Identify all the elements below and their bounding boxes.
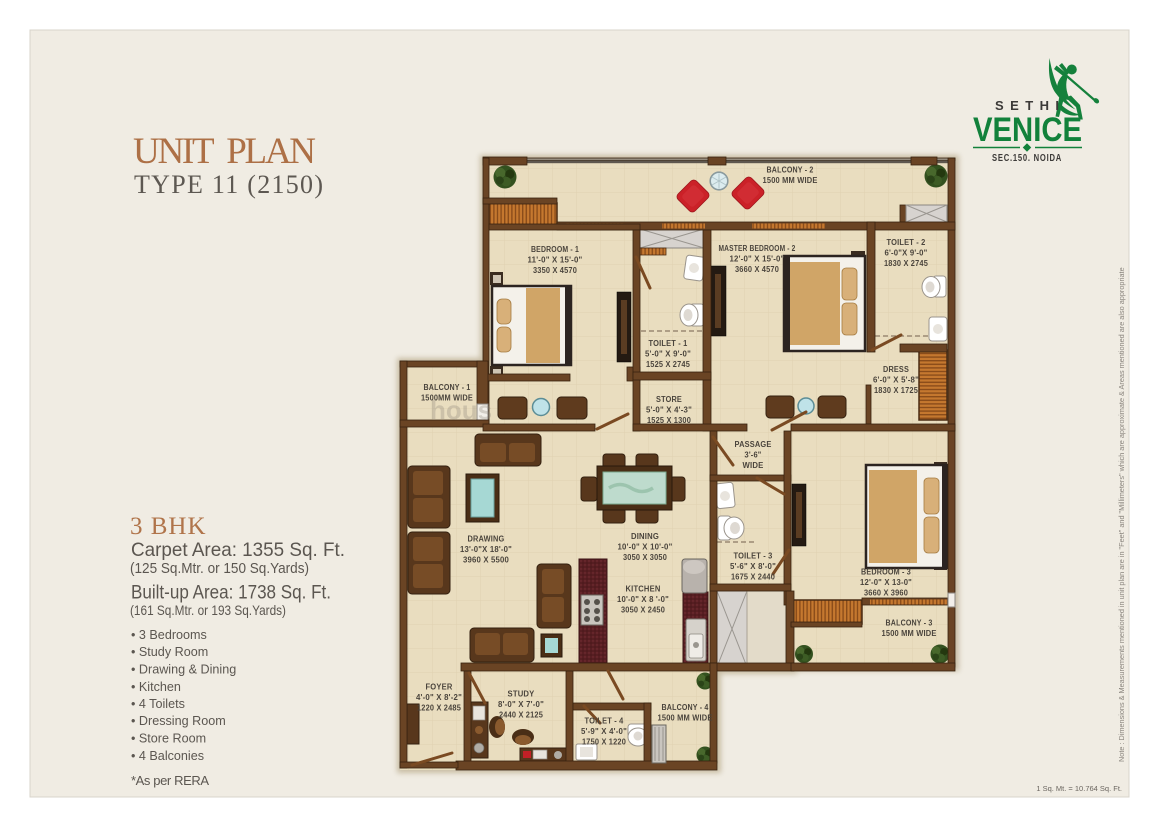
svg-text:3050 X 2450: 3050 X 2450: [621, 605, 665, 614]
svg-text:1675 X 2440: 1675 X 2440: [731, 572, 775, 581]
svg-text:PASSAGE: PASSAGE: [735, 440, 772, 449]
svg-text:Note : Dimensions & Measuremen: Note : Dimensions & Measurements mention…: [1117, 267, 1126, 762]
svg-text:8'-0" X 7'-0": 8'-0" X 7'-0": [498, 700, 544, 709]
svg-text:VENICE: VENICE: [973, 111, 1082, 149]
svg-text:1525 X 2745: 1525 X 2745: [646, 360, 690, 369]
svg-text:DRAWING: DRAWING: [468, 535, 505, 544]
svg-text:1830 X 1725: 1830 X 1725: [874, 386, 918, 395]
svg-text:FOYER: FOYER: [426, 683, 453, 692]
svg-text:• 4 Toilets: • 4 Toilets: [131, 697, 185, 711]
svg-text:BEDROOM - 3: BEDROOM - 3: [861, 568, 911, 577]
svg-text:1500 MM WIDE: 1500 MM WIDE: [658, 713, 713, 722]
svg-text:TYPE 11 (2150): TYPE 11 (2150): [134, 170, 323, 199]
svg-text:DINING: DINING: [631, 532, 659, 541]
svg-text:BALCONY - 2: BALCONY - 2: [767, 166, 814, 175]
svg-text:1750 X 1220: 1750 X 1220: [582, 737, 626, 746]
svg-text:TOILET - 3: TOILET - 3: [734, 552, 773, 561]
svg-text:10'-0" X 8 '-0": 10'-0" X 8 '-0": [617, 595, 669, 604]
svg-text:1500 MM WIDE: 1500 MM WIDE: [882, 629, 937, 638]
svg-text:TOILET - 4: TOILET - 4: [585, 717, 624, 726]
svg-text:UNIT PLAN: UNIT PLAN: [133, 131, 316, 172]
svg-text:1 Sq. Mt. = 10.764 Sq. Ft.: 1 Sq. Mt. = 10.764 Sq. Ft.: [1036, 784, 1122, 793]
svg-text:3050 X 3050: 3050 X 3050: [623, 553, 667, 562]
svg-text:3960 X 5500: 3960 X 5500: [463, 555, 509, 564]
svg-text:Carpet Area: 1355 Sq. Ft.: Carpet Area: 1355 Sq. Ft.: [131, 539, 345, 561]
svg-text:5'-9" X 4'-0": 5'-9" X 4'-0": [581, 727, 627, 736]
svg-text:KITCHEN: KITCHEN: [626, 585, 661, 594]
svg-text:5'-6" X 8'-0": 5'-6" X 8'-0": [730, 562, 776, 571]
svg-text:(161 Sq.Mtr. or 193 Sq.Yards): (161 Sq.Mtr. or 193 Sq.Yards): [130, 602, 286, 618]
svg-text:5'-0" X 4'-3": 5'-0" X 4'-3": [646, 405, 692, 414]
svg-text:12'-0" X 15'-0": 12'-0" X 15'-0": [730, 254, 785, 263]
svg-text:2440 X 2125: 2440 X 2125: [499, 710, 543, 719]
svg-text:3 BHK: 3 BHK: [130, 513, 207, 540]
svg-text:1220 X 2485: 1220 X 2485: [417, 703, 461, 712]
svg-text:• Study Room: • Study Room: [131, 645, 208, 659]
svg-text:6'-0"X 9'-0": 6'-0"X 9'-0": [885, 248, 928, 257]
svg-text:1500 MM WIDE: 1500 MM WIDE: [763, 176, 818, 185]
svg-text:WIDE: WIDE: [743, 461, 764, 470]
svg-text:Built-up Area: 1738 Sq. Ft.: Built-up Area: 1738 Sq. Ft.: [131, 582, 331, 604]
svg-text:BALCONY - 1: BALCONY - 1: [424, 383, 471, 392]
svg-text:TOILET - 1: TOILET - 1: [649, 339, 688, 348]
svg-text:• Kitchen: • Kitchen: [131, 680, 181, 694]
svg-text:1830 X 2745: 1830 X 2745: [884, 259, 928, 268]
svg-text:4'-0" X 8'-2": 4'-0" X 8'-2": [416, 693, 462, 702]
svg-text:13'-0"X 18'-0": 13'-0"X 18'-0": [460, 545, 512, 554]
svg-text:3'-6": 3'-6": [745, 450, 762, 459]
svg-text:BALCONY - 3: BALCONY - 3: [886, 619, 933, 628]
svg-text:5'-0" X 9'-0": 5'-0" X 9'-0": [645, 349, 691, 358]
svg-text:BEDROOM - 1: BEDROOM - 1: [531, 245, 579, 254]
svg-text:1525 X 1300: 1525 X 1300: [647, 416, 691, 425]
svg-text:• 3 Bedrooms: • 3 Bedrooms: [131, 628, 207, 642]
svg-text:12'-0" X 13-0": 12'-0" X 13-0": [860, 578, 912, 587]
svg-text:10'-0" X 10'-0": 10'-0" X 10'-0": [618, 542, 673, 551]
svg-text:TOILET - 2: TOILET - 2: [887, 238, 926, 247]
svg-text:*As per RERA: *As per RERA: [131, 773, 209, 788]
svg-text:• Drawing & Dining: • Drawing & Dining: [131, 663, 236, 677]
svg-text:STUDY: STUDY: [508, 690, 535, 699]
svg-text:11'-0" X 15'-0": 11'-0" X 15'-0": [528, 255, 583, 264]
svg-text:BALCONY - 4: BALCONY - 4: [662, 703, 709, 712]
svg-text:6'-0" X 5'-8": 6'-0" X 5'-8": [873, 375, 919, 384]
svg-text:3350 X 4570: 3350 X 4570: [533, 266, 577, 275]
svg-text:• 4 Balconies: • 4 Balconies: [131, 749, 204, 763]
svg-text:DRESS: DRESS: [883, 365, 909, 374]
svg-text:1500MM WIDE: 1500MM WIDE: [421, 393, 473, 402]
svg-text:MASTER BEDROOM - 2: MASTER BEDROOM - 2: [719, 244, 796, 253]
svg-text:(125 Sq.Mtr. or 150 Sq.Yards): (125 Sq.Mtr. or 150 Sq.Yards): [130, 561, 309, 577]
svg-text:• Store Room: • Store Room: [131, 732, 206, 746]
svg-text:SEC.150. NOIDA: SEC.150. NOIDA: [992, 153, 1062, 164]
svg-text:STORE: STORE: [656, 395, 682, 404]
svg-text:3660 X 4570: 3660 X 4570: [735, 265, 779, 274]
svg-text:• Dressing Room: • Dressing Room: [131, 714, 226, 728]
svg-text:3660 X 3960: 3660 X 3960: [864, 588, 908, 597]
